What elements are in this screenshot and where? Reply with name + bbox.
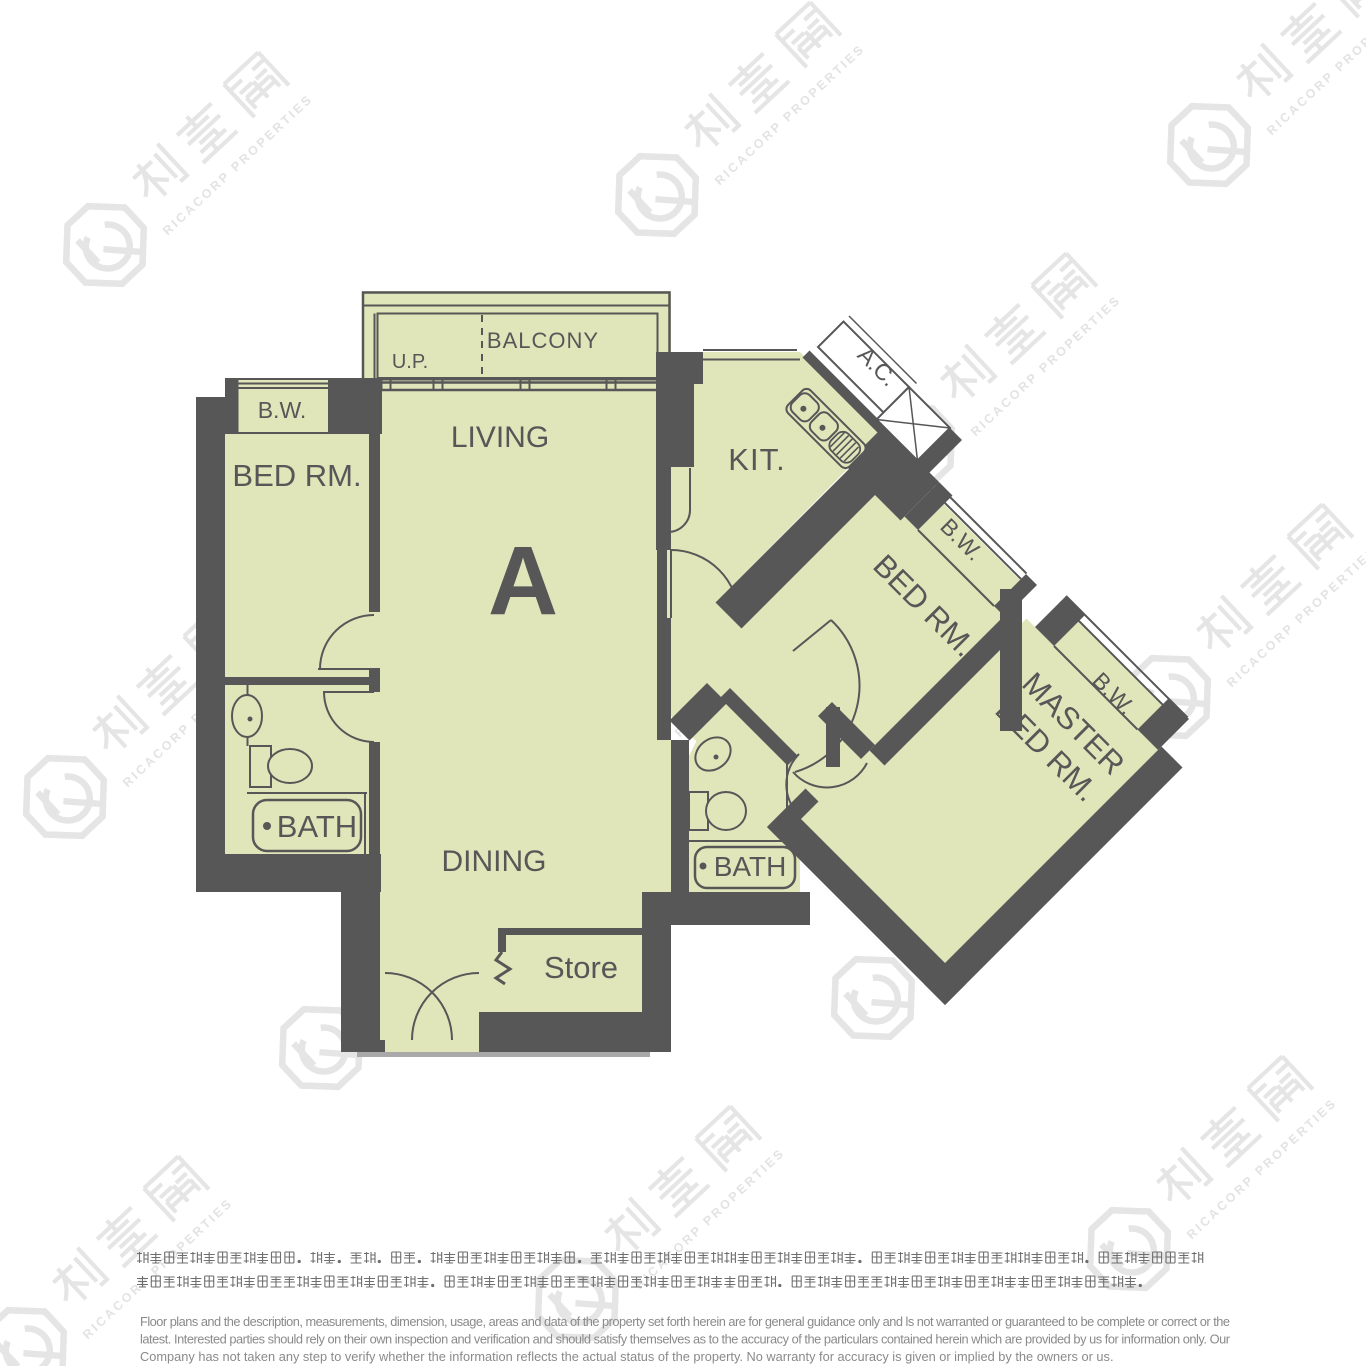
- svg-text:KIT.: KIT.: [728, 442, 785, 477]
- svg-text:Company has not taken any step: Company has not taken any step to verify…: [140, 1349, 1114, 1364]
- svg-text:Floor plans and the descriptio: Floor plans and the description, measure…: [140, 1314, 1230, 1329]
- svg-text:Store: Store: [544, 950, 618, 985]
- svg-text:A: A: [488, 526, 558, 635]
- svg-text:latest. Interested parties sho: latest. Interested parties should rely o…: [140, 1332, 1231, 1347]
- svg-text:B.W.: B.W.: [258, 397, 307, 423]
- svg-text:BATH: BATH: [714, 851, 787, 882]
- svg-text:U.P.: U.P.: [392, 351, 428, 373]
- svg-text:LIVING: LIVING: [451, 421, 549, 454]
- svg-text:DINING: DINING: [442, 845, 547, 878]
- svg-text:BATH: BATH: [277, 809, 357, 844]
- svg-text:BALCONY: BALCONY: [487, 328, 599, 353]
- svg-text:BED RM.: BED RM.: [232, 458, 361, 493]
